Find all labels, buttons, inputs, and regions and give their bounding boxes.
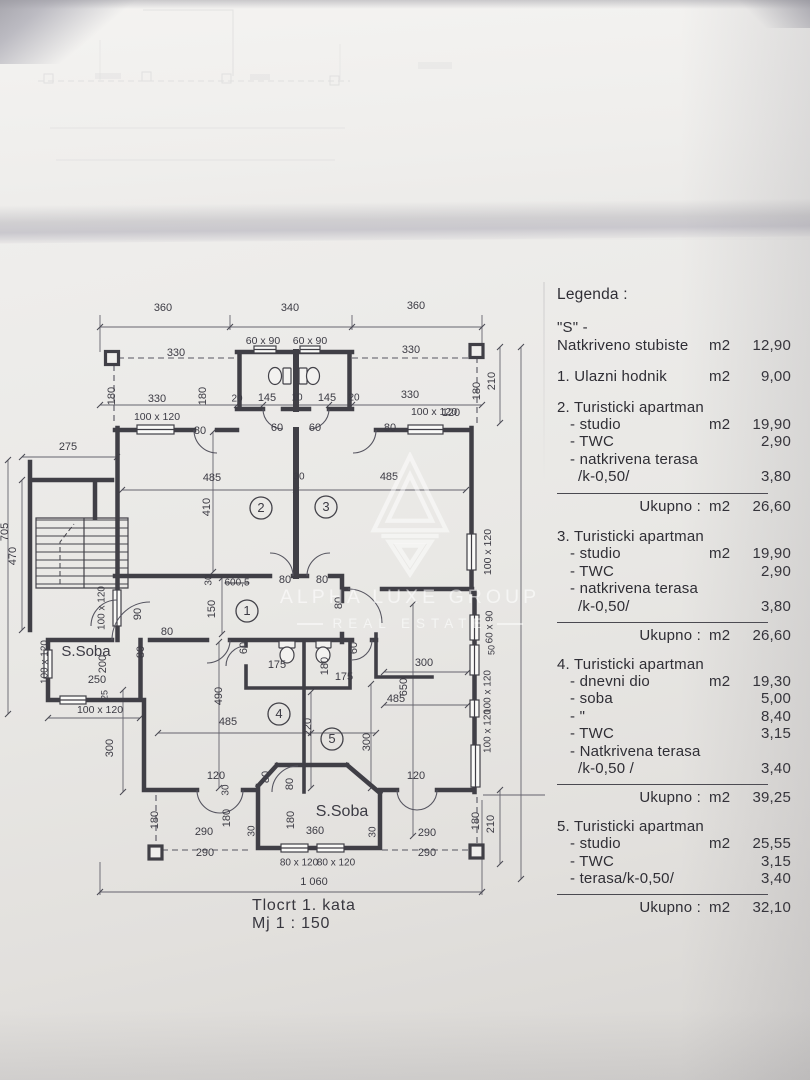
dimension-label: 175 (268, 659, 286, 671)
dimension-label: 180 (221, 809, 233, 827)
paper-crease (543, 282, 545, 482)
dimension-label: 300 (415, 657, 433, 669)
dimension-label: 290 (418, 847, 436, 859)
dimension-label: 60 x 90 (293, 335, 328, 347)
dimension-label: 275 (59, 441, 77, 453)
dimension-label: 360 (154, 302, 172, 314)
dimension-label: 220 (302, 718, 314, 736)
room-number: 1 (243, 603, 250, 618)
dimension-label: 100 x 120 (134, 411, 180, 423)
dimension-label: 30 (221, 784, 232, 796)
dimension-label: 600,5 (224, 578, 249, 589)
dimension-label: 150 (206, 600, 218, 618)
dimension-label: 20 (231, 394, 243, 405)
dimension-label: 145 (258, 392, 276, 404)
dimension-label: 210 (486, 372, 498, 390)
plan-scale: Mj 1 : 150 (252, 915, 356, 933)
dimension-label: 80 (279, 574, 291, 586)
plan-title: Tlocrt 1. kata (252, 897, 356, 915)
toilet-icon (269, 368, 292, 385)
dimension-label: 330 (401, 389, 419, 401)
dimension-label: 30 (247, 825, 258, 837)
dimension-label: 210 (485, 815, 497, 833)
dimension-label: 330 (402, 344, 420, 356)
dimension-label: 80 (284, 778, 296, 790)
dimension-label: 80 x 120 (280, 858, 319, 869)
dimension-label: 60 x 90 (246, 335, 281, 347)
title-block: Tlocrt 1. kata Mj 1 : 150 (252, 897, 356, 932)
dimension-label: 410 (201, 498, 213, 516)
dimension-label: 30 (293, 472, 305, 483)
dimension-label: 60 x 90 (485, 610, 496, 643)
dimension-lines (8, 315, 545, 895)
dimension-label: 1 060 (300, 876, 328, 888)
dimension-label: 180 (470, 812, 482, 830)
dimension-label: 360 (407, 300, 425, 312)
dimension-label: 80 (333, 597, 345, 609)
room-number: 3 (322, 499, 329, 514)
dimension-label: 300 (361, 733, 373, 751)
dimension-label: 80 (316, 574, 328, 586)
dimension-label: 485 (380, 471, 398, 483)
scanned-paper: 12345 36034036060 x 9060 x 9033033018018… (0, 0, 810, 1080)
dimension-label: 10 (291, 393, 303, 404)
dimension-label: 120 (407, 770, 425, 782)
dimension-label: S.Soba (316, 803, 369, 820)
dimension-label: 180 (197, 387, 209, 405)
toilet-icon (299, 368, 320, 385)
dimension-label: 485 (387, 693, 405, 705)
dimension-label: 490 (213, 687, 225, 705)
dimension-label: 290 (195, 826, 213, 838)
dimension-label: 180 (319, 657, 331, 675)
dimension-label: 60 (238, 642, 250, 654)
dimension-label: 330 (148, 393, 166, 405)
dimension-label: 485 (203, 472, 221, 484)
dimension-label: 175 (335, 671, 353, 683)
paper-corner-shadow-left (0, 0, 160, 64)
dimension-label: 80 (384, 422, 396, 434)
dimension-label: 100 x 120 (77, 704, 123, 716)
room-number: 5 (328, 731, 335, 746)
dimension-label: 180 (471, 382, 483, 400)
dimension-label: 25 (99, 690, 109, 700)
dimension-label: 290 (196, 847, 214, 859)
dimension-label: 100 x 120 (40, 640, 51, 684)
dimension-label: 180 (106, 387, 118, 405)
room-number-circles: 12345 (236, 496, 343, 750)
dimension-label: 120 (207, 770, 225, 782)
paper-shade-right (680, 0, 810, 1080)
dimension-label: 80 (135, 646, 147, 658)
dimension-label: 60 (271, 422, 283, 434)
dimension-label: 20 (348, 393, 360, 404)
toilets (269, 368, 332, 664)
dimension-label: 200 (97, 655, 109, 673)
dimension-label: 100 x 120 (482, 529, 494, 575)
dimension-label: 100 x 120 (483, 670, 494, 714)
dimension-label: 360 (306, 825, 324, 837)
dimension-label: 80 (161, 626, 173, 638)
dimension-label: 290 (418, 827, 436, 839)
dimension-label: 180 (149, 811, 161, 829)
dimension-label: 180 (285, 811, 297, 829)
dimension-label: 50 (486, 645, 496, 655)
dimension-label: 250 (88, 674, 106, 686)
paper-shade-bottom (0, 1010, 810, 1080)
dimension-label: 80 (260, 771, 272, 783)
dimension-label: 30 (204, 574, 215, 586)
dimension-label: 100 x 120 (483, 709, 494, 753)
dimension-label: 300 (104, 739, 116, 757)
dimension-label: 485 (219, 716, 237, 728)
room-number: 4 (275, 706, 282, 721)
dimension-label: 60 (309, 422, 321, 434)
room-number: 2 (257, 500, 264, 515)
legend-title: Legenda : (557, 286, 628, 303)
dimension-label: 80 x 120 (317, 858, 356, 869)
dimension-label: 120 (442, 407, 460, 419)
dimension-label: 90 (132, 608, 144, 620)
dimension-label: 100 x 120 (97, 586, 108, 630)
dimension-label: 60 (348, 642, 360, 654)
dimension-label: 340 (281, 302, 299, 314)
plan-labels: 36034036060 x 9060 x 9033033018018033020… (0, 300, 498, 888)
dimension-label: 30 (368, 826, 379, 838)
dimension-label: 80 (194, 425, 206, 437)
dimension-label: 705 (0, 523, 11, 541)
dimension-label: 470 (7, 547, 19, 565)
dimension-label: 145 (318, 392, 336, 404)
dimension-label: 330 (167, 347, 185, 359)
